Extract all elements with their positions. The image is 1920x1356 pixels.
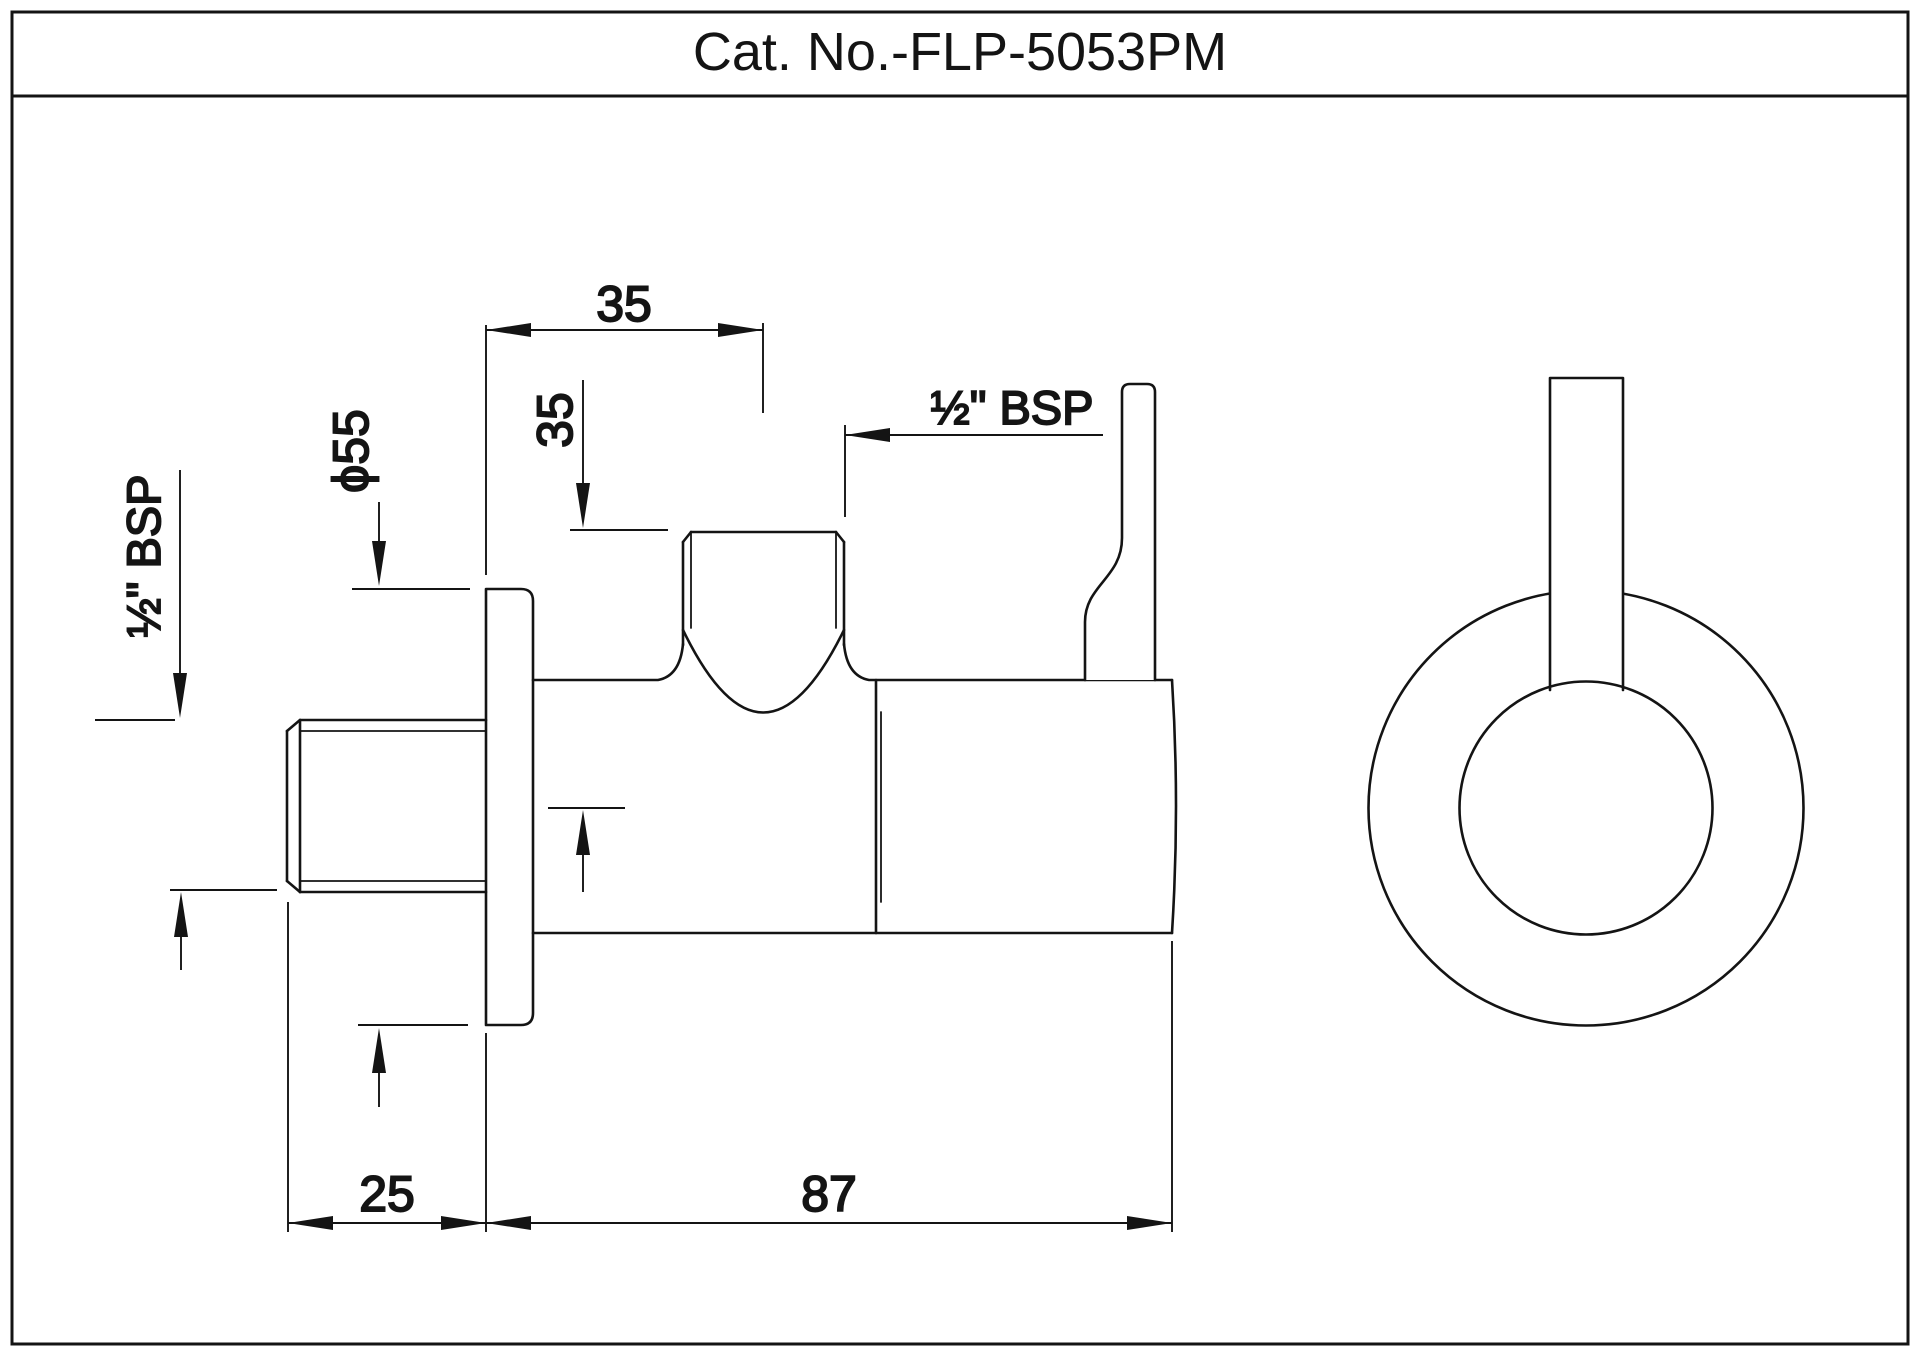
wall-flange xyxy=(486,589,533,1025)
dim-outlet-height-label: 35 xyxy=(527,392,583,448)
dim-outlet-height xyxy=(548,380,668,892)
title-text: Cat. No.-FLP-5053PM xyxy=(693,22,1227,82)
dim-inlet-thread-label: ½" BSP xyxy=(117,475,170,638)
dim-flange-diameter xyxy=(352,502,470,1107)
dim-body-length-label: 87 xyxy=(801,1166,857,1222)
left-view xyxy=(287,384,1176,1025)
dim-inlet-length-label: 25 xyxy=(359,1166,415,1222)
body-inner-circle xyxy=(1460,682,1713,935)
handle-front-bar xyxy=(1550,378,1623,690)
dim-outlet-thread xyxy=(845,425,1103,517)
outlet-spout xyxy=(683,532,844,713)
dim-top-offset-label: 35 xyxy=(596,276,652,332)
valve-body xyxy=(533,644,1176,933)
drawing-sheet: Cat. No.-FLP-5053PM xyxy=(0,0,1920,1356)
dim-bottom-chain xyxy=(288,902,1172,1232)
technical-drawing-canvas: Cat. No.-FLP-5053PM xyxy=(0,0,1920,1356)
dim-outlet-thread-label: ½" BSP xyxy=(931,381,1094,434)
inlet-pipe xyxy=(287,720,486,892)
handle-side-profile xyxy=(1085,384,1155,680)
right-view xyxy=(1369,378,1804,1026)
dimensions: 35 35 ½" BSP xyxy=(95,276,1172,1232)
dim-flange-diameter-label: ϕ55 xyxy=(323,409,379,493)
dim-top-offset xyxy=(486,323,763,575)
